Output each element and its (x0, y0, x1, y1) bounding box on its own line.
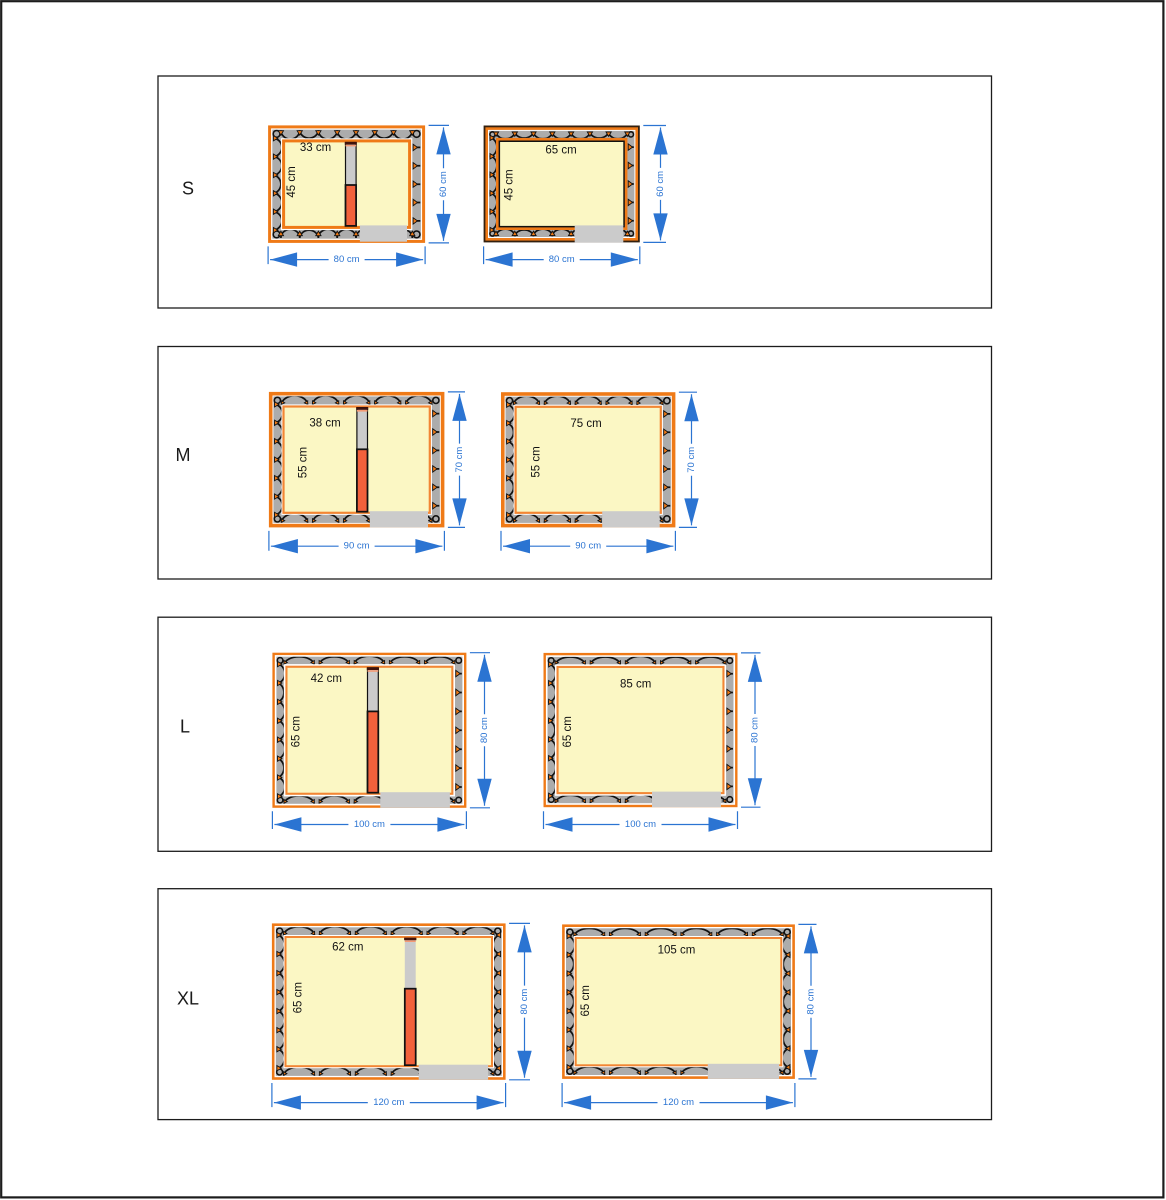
svg-text:45 cm: 45 cm (504, 169, 516, 200)
svg-text:100 cm: 100 cm (625, 819, 656, 830)
svg-text:65 cm: 65 cm (291, 716, 303, 747)
svg-text:S: S (182, 178, 194, 198)
svg-text:45 cm: 45 cm (286, 166, 298, 197)
svg-text:80 cm: 80 cm (806, 989, 817, 1015)
svg-text:65 cm: 65 cm (562, 716, 574, 747)
svg-text:65 cm: 65 cm (293, 982, 305, 1013)
svg-text:100 cm: 100 cm (354, 819, 385, 830)
svg-text:L: L (180, 716, 190, 736)
svg-text:120 cm: 120 cm (663, 1097, 694, 1108)
svg-text:65 cm: 65 cm (545, 145, 576, 157)
svg-text:90 cm: 90 cm (575, 541, 601, 552)
svg-text:80 cm: 80 cm (750, 717, 761, 743)
svg-text:85 cm: 85 cm (620, 678, 651, 690)
svg-text:55 cm: 55 cm (298, 447, 310, 478)
svg-text:60 cm: 60 cm (438, 171, 449, 197)
svg-text:33 cm: 33 cm (300, 142, 331, 154)
svg-text:80 cm: 80 cm (479, 717, 490, 743)
svg-text:55 cm: 55 cm (531, 446, 543, 477)
svg-text:90 cm: 90 cm (344, 541, 370, 552)
svg-text:38 cm: 38 cm (309, 418, 340, 430)
svg-text:70 cm: 70 cm (454, 447, 465, 473)
svg-text:80 cm: 80 cm (334, 254, 360, 265)
svg-text:62 cm: 62 cm (332, 942, 363, 954)
svg-text:65 cm: 65 cm (580, 985, 592, 1016)
svg-text:M: M (176, 445, 191, 465)
svg-text:70 cm: 70 cm (686, 447, 697, 473)
svg-text:75 cm: 75 cm (570, 418, 601, 430)
svg-text:80 cm: 80 cm (549, 254, 575, 265)
svg-text:105 cm: 105 cm (658, 945, 696, 957)
svg-text:42 cm: 42 cm (311, 673, 342, 685)
svg-text:80 cm: 80 cm (519, 989, 530, 1015)
svg-text:XL: XL (177, 988, 199, 1008)
svg-text:120 cm: 120 cm (373, 1097, 404, 1108)
svg-text:60 cm: 60 cm (655, 171, 666, 197)
